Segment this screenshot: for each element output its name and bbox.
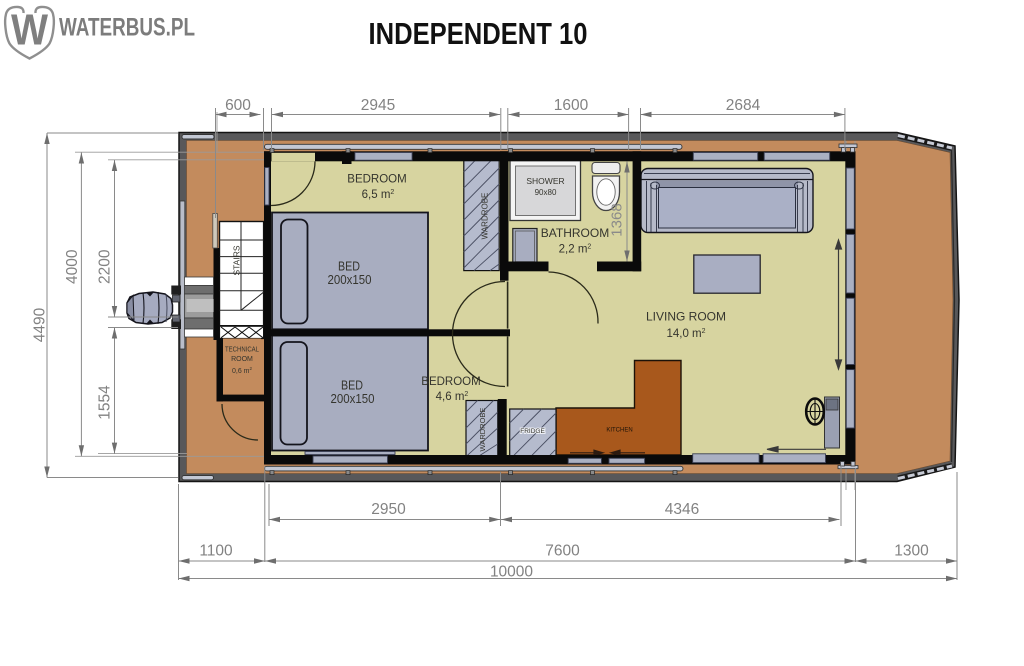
svg-text:4,6 m2: 4,6 m2 — [436, 391, 469, 403]
svg-text:1600: 1600 — [554, 97, 589, 114]
svg-text:TECHNICAL: TECHNICAL — [225, 347, 259, 354]
svg-text:4000: 4000 — [64, 249, 81, 284]
svg-text:14,0 m2: 14,0 m2 — [666, 328, 705, 340]
svg-text:4346: 4346 — [665, 501, 699, 518]
svg-text:2945: 2945 — [361, 97, 395, 114]
svg-text:BATHROOM: BATHROOM — [541, 226, 609, 240]
svg-text:200x150: 200x150 — [328, 272, 372, 287]
svg-text:W: W — [11, 6, 48, 55]
svg-text:600: 600 — [225, 97, 251, 114]
svg-text:1368: 1368 — [609, 203, 626, 236]
svg-text:1554: 1554 — [97, 385, 114, 420]
svg-text:2684: 2684 — [726, 97, 761, 114]
svg-text:WARDROBE: WARDROBE — [481, 193, 490, 240]
svg-text:ROOM: ROOM — [231, 356, 253, 363]
svg-text:BEDROOM: BEDROOM — [421, 376, 480, 388]
svg-text:200x150: 200x150 — [331, 391, 375, 406]
svg-text:STAIRS: STAIRS — [232, 245, 242, 275]
svg-text:WATERBUS.PL: WATERBUS.PL — [59, 14, 195, 42]
svg-text:4490: 4490 — [32, 307, 49, 342]
svg-text:7600: 7600 — [545, 543, 580, 560]
svg-text:0,6 m2: 0,6 m2 — [232, 366, 253, 375]
svg-text:WARDROBE: WARDROBE — [478, 408, 487, 452]
svg-text:10000: 10000 — [490, 564, 533, 581]
svg-text:BEDROOM: BEDROOM — [347, 174, 406, 186]
svg-text:INDEPENDENT 10: INDEPENDENT 10 — [369, 16, 588, 51]
svg-text:LIVING ROOM: LIVING ROOM — [646, 310, 726, 324]
svg-text:1100: 1100 — [199, 543, 233, 560]
svg-text:2950: 2950 — [371, 501, 406, 518]
svg-text:2,2 m2: 2,2 m2 — [559, 244, 592, 256]
svg-text:FRIDGE: FRIDGE — [520, 428, 545, 435]
svg-text:90x80: 90x80 — [535, 188, 557, 197]
svg-text:2200: 2200 — [97, 249, 114, 284]
svg-text:1300: 1300 — [894, 543, 929, 560]
svg-text:SHOWER: SHOWER — [526, 176, 564, 186]
svg-text:KITCHEN: KITCHEN — [606, 428, 632, 434]
svg-text:6,5 m2: 6,5 m2 — [362, 189, 395, 201]
